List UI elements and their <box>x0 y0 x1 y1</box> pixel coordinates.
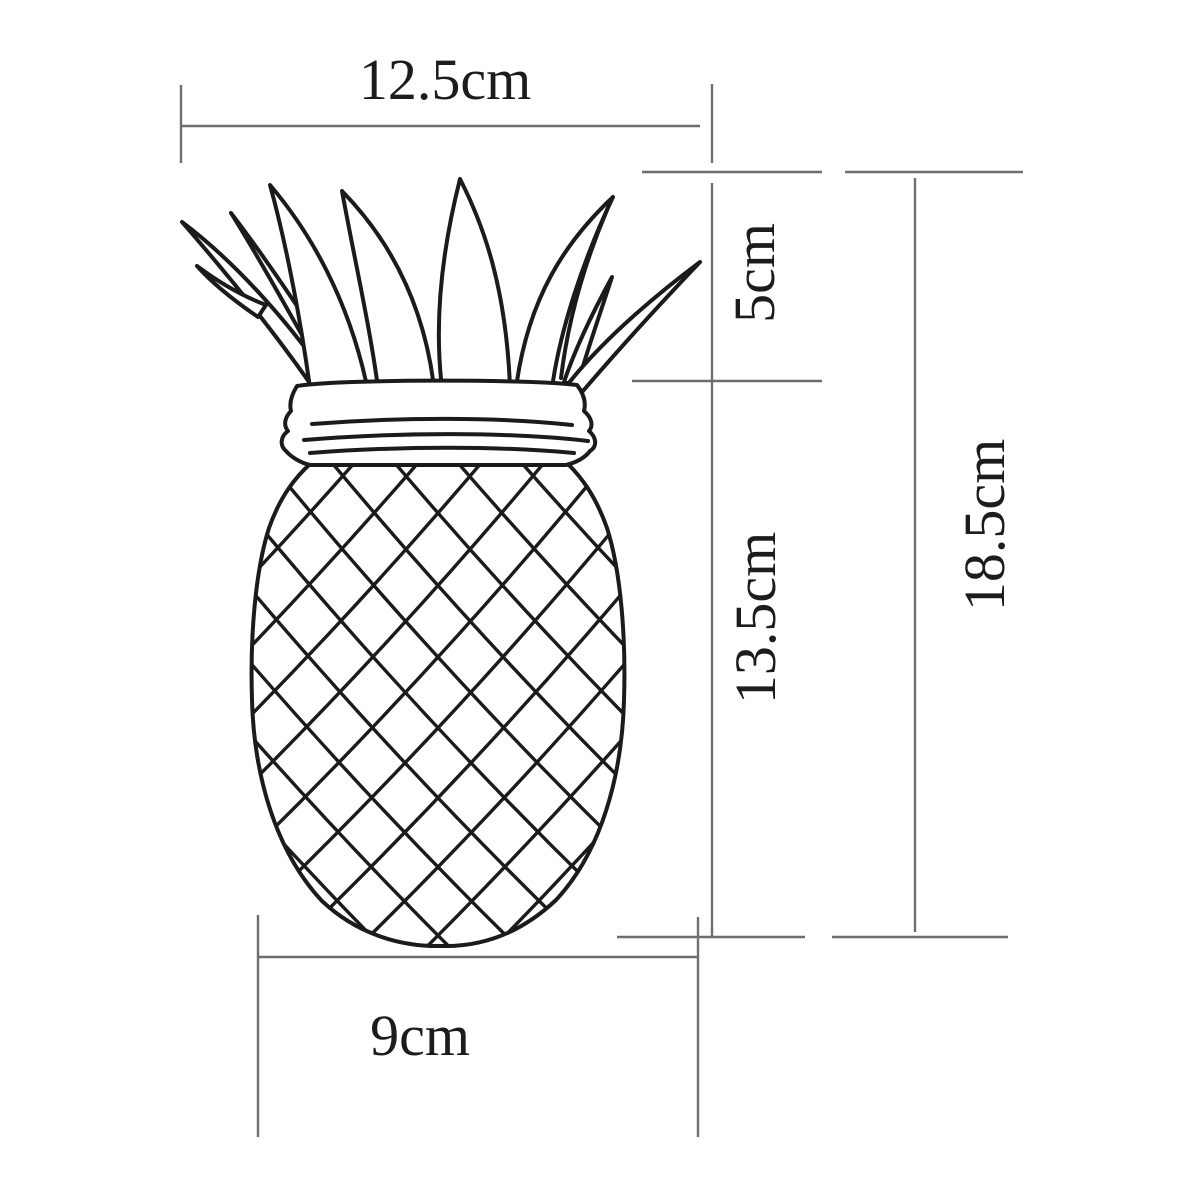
pineapple-diagram-svg <box>0 0 1200 1200</box>
dim-label-total-height: 18.5cm <box>956 439 1014 611</box>
jar-lid-band <box>282 381 596 465</box>
dim-label-base-width: 9cm <box>370 1007 470 1065</box>
dim-label-top-width: 12.5cm <box>359 51 531 109</box>
dimension-diagram: 12.5cm 5cm 13.5cm 18.5cm 9cm <box>0 0 1200 1200</box>
pineapple-crown-leaves <box>182 179 700 392</box>
dim-label-crown-height: 5cm <box>726 223 784 323</box>
leaf-petal-center <box>439 179 510 388</box>
dim-label-body-height: 13.5cm <box>727 532 785 704</box>
jar-body-outline <box>252 464 625 946</box>
